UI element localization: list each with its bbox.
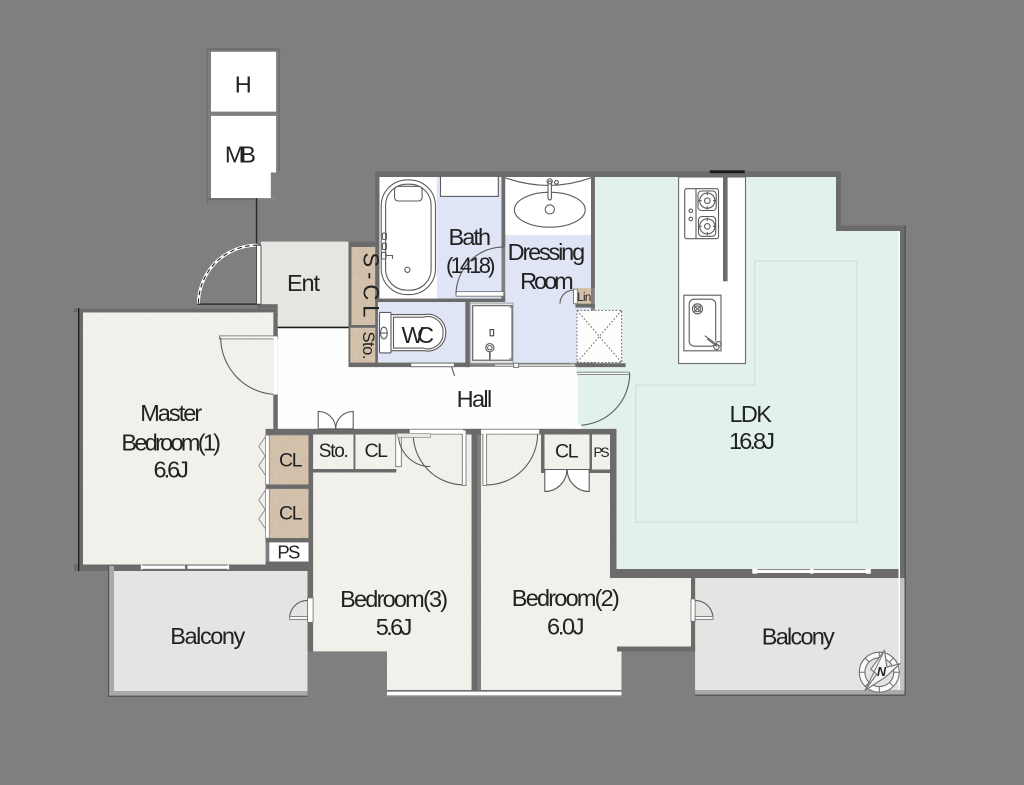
- svg-text:Balcony: Balcony: [762, 624, 835, 650]
- svg-text:Ent: Ent: [287, 270, 320, 296]
- svg-text:16.8J: 16.8J: [729, 428, 775, 454]
- svg-text:CL: CL: [364, 440, 388, 462]
- svg-text:Bath: Bath: [449, 224, 492, 250]
- svg-text:Lin: Lin: [577, 292, 591, 304]
- svg-text:PS: PS: [277, 541, 300, 562]
- svg-text:CL: CL: [279, 503, 303, 525]
- svg-text:S-CL: S-CL: [358, 253, 383, 318]
- svg-text:Bedroom(3): Bedroom(3): [340, 586, 448, 612]
- svg-text:(1418): (1418): [446, 253, 496, 278]
- svg-text:MB: MB: [225, 142, 256, 168]
- svg-text:Bedroom(2): Bedroom(2): [512, 585, 620, 611]
- svg-text:5.6J: 5.6J: [376, 614, 413, 640]
- svg-text:H: H: [235, 72, 252, 98]
- svg-text:Dressing: Dressing: [508, 239, 586, 265]
- svg-text:Bedroom(1): Bedroom(1): [121, 429, 221, 455]
- svg-text:N: N: [877, 665, 887, 679]
- svg-text:CL: CL: [555, 440, 579, 462]
- svg-text:WC: WC: [402, 322, 435, 348]
- svg-text:PS: PS: [594, 445, 610, 460]
- svg-text:6.0J: 6.0J: [547, 613, 585, 639]
- svg-text:Master: Master: [140, 400, 202, 426]
- svg-text:Sto.: Sto.: [359, 332, 377, 360]
- svg-text:CL: CL: [279, 449, 303, 471]
- svg-text:Sto.: Sto.: [319, 441, 349, 462]
- svg-text:Balcony: Balcony: [170, 623, 245, 649]
- svg-text:LDK: LDK: [729, 401, 772, 427]
- svg-text:Hall: Hall: [457, 386, 493, 412]
- svg-text:6.6J: 6.6J: [154, 457, 189, 483]
- svg-text:Room: Room: [520, 268, 574, 294]
